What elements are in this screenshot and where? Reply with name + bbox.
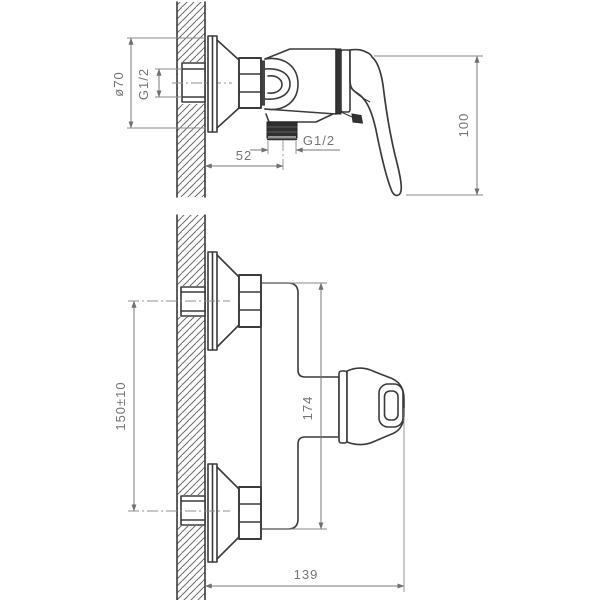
dim-inlet-spacing: 150±10 <box>113 301 134 511</box>
shower-mixer-drawing: ø70 G1/2 52 G1/2 100 <box>0 0 600 600</box>
hex-nut-side <box>239 58 261 108</box>
escutcheon-cone-bottom <box>217 467 239 559</box>
dim-wall-to-outlet: 52 <box>205 140 283 171</box>
escutcheon-cone <box>217 40 239 128</box>
front-view: 150±10 174 139 <box>113 215 404 600</box>
dim-139-label: 139 <box>294 567 319 582</box>
wall-hatch <box>177 215 205 600</box>
technical-drawing-canvas: ø70 G1/2 52 G1/2 100 <box>0 0 600 600</box>
hex-nut-top <box>239 275 261 327</box>
nut-body <box>239 58 261 108</box>
dim-150-label: 150±10 <box>113 381 128 430</box>
handle-front <box>339 368 404 445</box>
side-view: ø70 G1/2 52 G1/2 100 <box>111 2 483 197</box>
outlet-thread <box>267 122 297 138</box>
lever-handle-side <box>341 50 401 196</box>
dim-100-label: 100 <box>456 113 471 138</box>
escutcheon-side <box>208 36 239 132</box>
dim-52-label: 52 <box>236 148 252 163</box>
dim-inlet-thread: G1/2 <box>136 68 182 100</box>
dim-g12in-label: G1/2 <box>136 68 151 100</box>
wall-section-front <box>177 215 205 600</box>
mixer-body-side <box>265 49 350 140</box>
dim-d70-label: ø70 <box>111 71 126 96</box>
handle-body-front <box>347 368 404 445</box>
bottom-skirt <box>266 114 333 122</box>
cartridge-cap <box>341 50 350 112</box>
cartridge-ring-front <box>339 371 347 443</box>
hex-nut-bottom <box>239 487 261 539</box>
dim-174-label: 174 <box>300 396 315 421</box>
dim-g12out-label: G1/2 <box>303 133 335 148</box>
lever-set-screw <box>352 114 363 123</box>
